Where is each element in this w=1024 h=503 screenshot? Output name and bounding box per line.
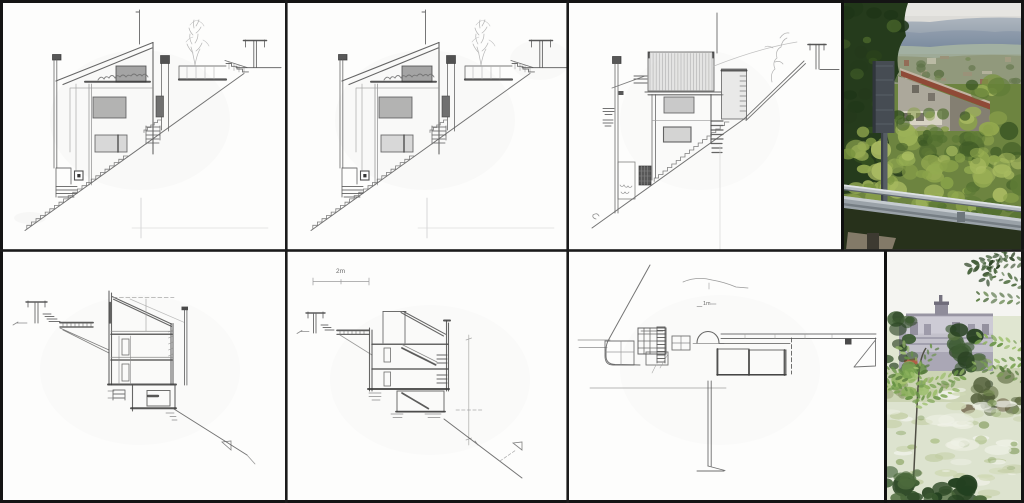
svg-text:2m: 2m: [336, 268, 345, 275]
svg-text:1m: 1m: [703, 301, 711, 307]
